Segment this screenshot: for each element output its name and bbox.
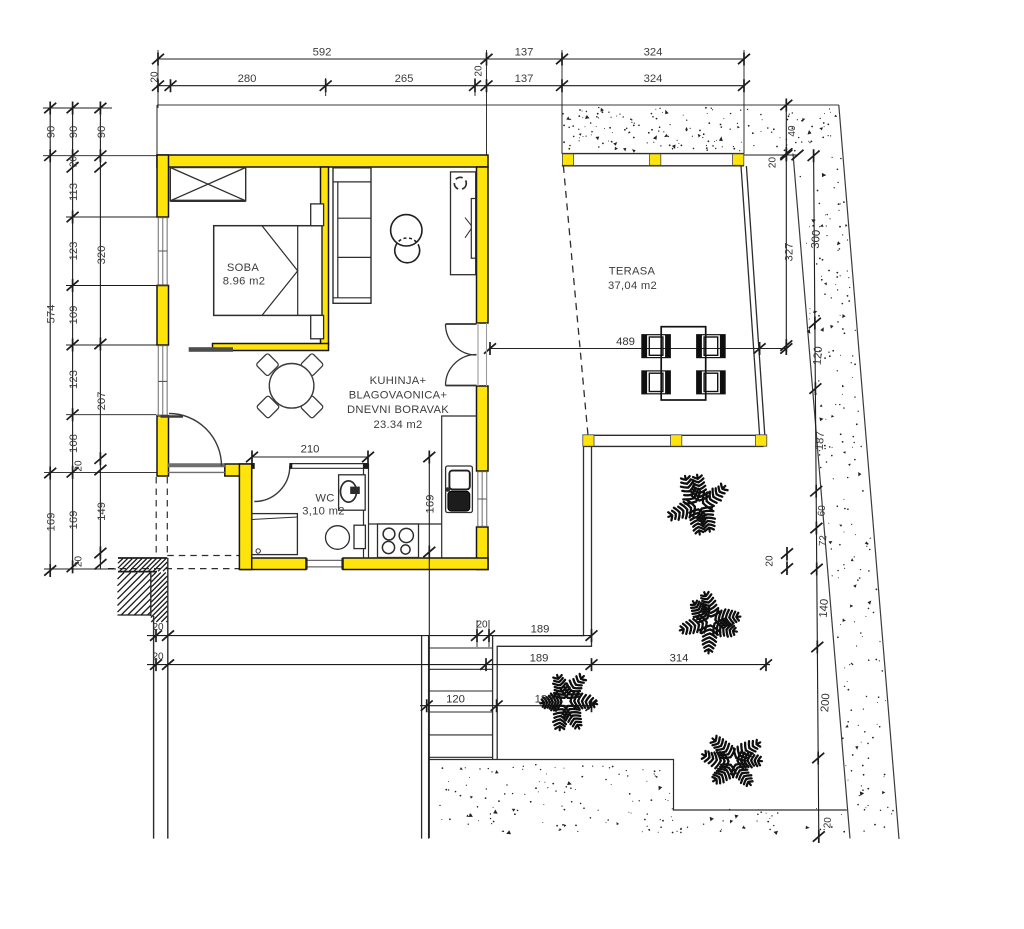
svg-text:20: 20: [474, 65, 485, 77]
svg-text:169: 169: [68, 511, 80, 530]
svg-text:320: 320: [96, 246, 108, 265]
svg-text:20: 20: [152, 622, 164, 633]
svg-text:113: 113: [68, 183, 80, 201]
svg-text:120: 120: [812, 346, 825, 366]
svg-text:324: 324: [644, 73, 663, 85]
svg-text:109: 109: [68, 306, 80, 325]
svg-text:189: 189: [531, 624, 550, 636]
svg-text:90: 90: [46, 126, 58, 139]
svg-text:20: 20: [69, 156, 80, 168]
svg-text:20: 20: [152, 652, 164, 663]
svg-text:WC: WC: [315, 493, 334, 505]
svg-text:120: 120: [446, 693, 465, 705]
svg-text:169: 169: [46, 513, 58, 532]
svg-text:265: 265: [395, 73, 414, 85]
svg-text:592: 592: [313, 47, 332, 59]
svg-text:20: 20: [822, 816, 834, 828]
svg-text:574: 574: [46, 305, 58, 324]
svg-text:20: 20: [74, 556, 85, 568]
svg-text:280: 280: [238, 73, 257, 85]
svg-text:BLAGOVAONICA+: BLAGOVAONICA+: [349, 390, 448, 402]
svg-text:TERASA: TERASA: [609, 266, 656, 278]
svg-text:SOBA: SOBA: [227, 262, 260, 274]
svg-text:20: 20: [74, 460, 85, 472]
svg-text:40: 40: [787, 125, 798, 137]
svg-text:123: 123: [68, 242, 80, 261]
svg-text:8.96 m2: 8.96 m2: [223, 276, 266, 288]
svg-text:187: 187: [814, 431, 827, 451]
svg-text:37,04 m2: 37,04 m2: [608, 280, 657, 292]
svg-text:140: 140: [818, 598, 831, 618]
svg-text:20: 20: [150, 71, 161, 83]
svg-text:20: 20: [476, 619, 488, 630]
svg-text:327: 327: [783, 243, 795, 262]
svg-text:314: 314: [670, 652, 689, 664]
svg-text:23.34 m2: 23.34 m2: [373, 419, 422, 431]
svg-text:20: 20: [765, 555, 776, 567]
svg-text:72: 72: [818, 534, 830, 546]
svg-text:149: 149: [96, 502, 108, 521]
svg-text:123: 123: [68, 370, 80, 389]
svg-text:169: 169: [425, 495, 437, 514]
svg-text:60: 60: [816, 504, 828, 516]
svg-text:324: 324: [644, 47, 663, 59]
svg-text:300: 300: [810, 229, 823, 249]
svg-text:210: 210: [301, 444, 320, 456]
svg-text:108: 108: [68, 434, 80, 453]
svg-text:137: 137: [515, 47, 534, 59]
svg-text:20: 20: [768, 157, 779, 169]
svg-text:200: 200: [819, 693, 832, 713]
svg-text:90: 90: [96, 126, 108, 139]
svg-text:90: 90: [68, 126, 80, 139]
svg-text:189: 189: [530, 652, 549, 664]
svg-text:137: 137: [515, 73, 534, 85]
svg-text:DNEVNI BORAVAK: DNEVNI BORAVAK: [347, 404, 449, 416]
svg-text:3,10 m2: 3,10 m2: [302, 506, 345, 518]
svg-text:207: 207: [96, 392, 108, 411]
svg-text:KUHINJA+: KUHINJA+: [370, 375, 427, 387]
svg-text:489: 489: [616, 336, 635, 348]
